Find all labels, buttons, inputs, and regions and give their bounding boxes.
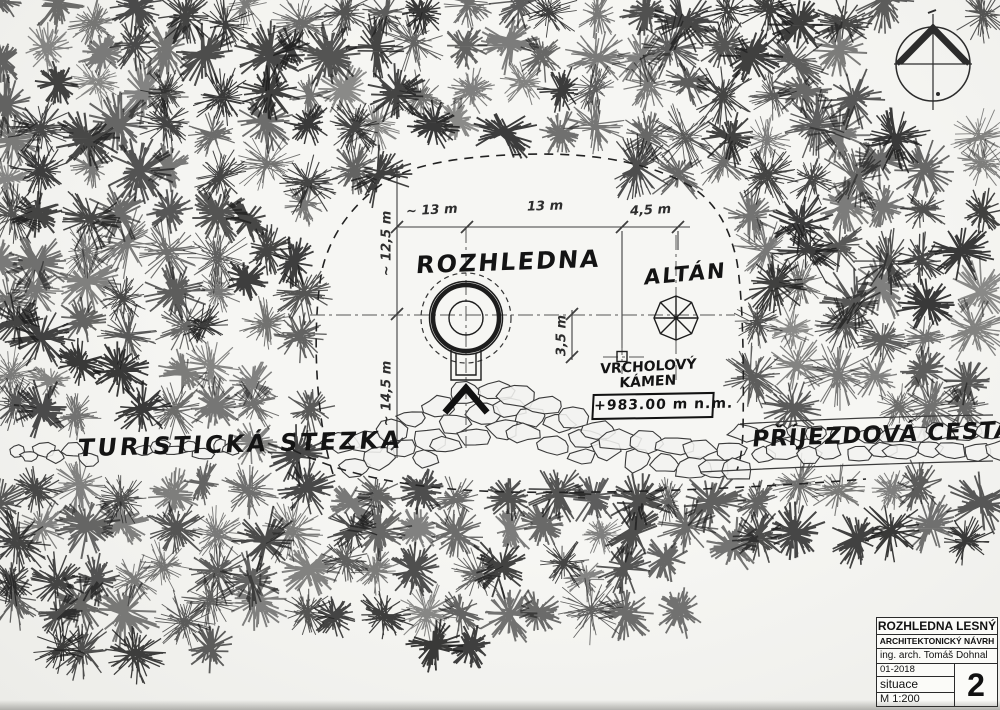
dim-top-right: 4,5 m [630, 202, 672, 219]
site-plan-drawing [0, 0, 1000, 710]
title-block-date: 01-2018 [877, 664, 954, 677]
forest-trees-layer [0, 0, 1000, 684]
title-block-project: ROZHLEDNA LESNÝ [877, 618, 997, 635]
elevation-label: +983.00 m n.m. [591, 392, 714, 420]
dim-stone-offset: 3,5 m [555, 301, 570, 371]
north-arrow-icon [894, 10, 972, 110]
dim-left-upper: ~ 12,5 m [380, 209, 395, 279]
title-block-subtitle: ARCHITEKTONICKÝ NÁVRH [877, 635, 997, 649]
scan-edge-shadow [0, 700, 1000, 710]
dim-top-left: ~ 13 m [406, 202, 458, 220]
dim-top-mid: 13 m [527, 198, 564, 214]
title-block-author: ing. arch. Tomáš Dohnal [877, 649, 997, 664]
title-block-drawing: situace [877, 677, 954, 693]
dim-left-lower: ~ 14,5 m [380, 359, 395, 429]
site-plan-sheet: ROZHLEDNA ALTÁN VRCHOLOVÝ KÁMEN +983.00 … [0, 0, 1000, 710]
gazebo-symbol [654, 296, 698, 340]
title-block: ROZHLEDNA LESNÝ ARCHITEKTONICKÝ NÁVRH in… [876, 617, 998, 707]
summit-stone-label: VRCHOLOVÝ KÁMEN [596, 357, 701, 393]
